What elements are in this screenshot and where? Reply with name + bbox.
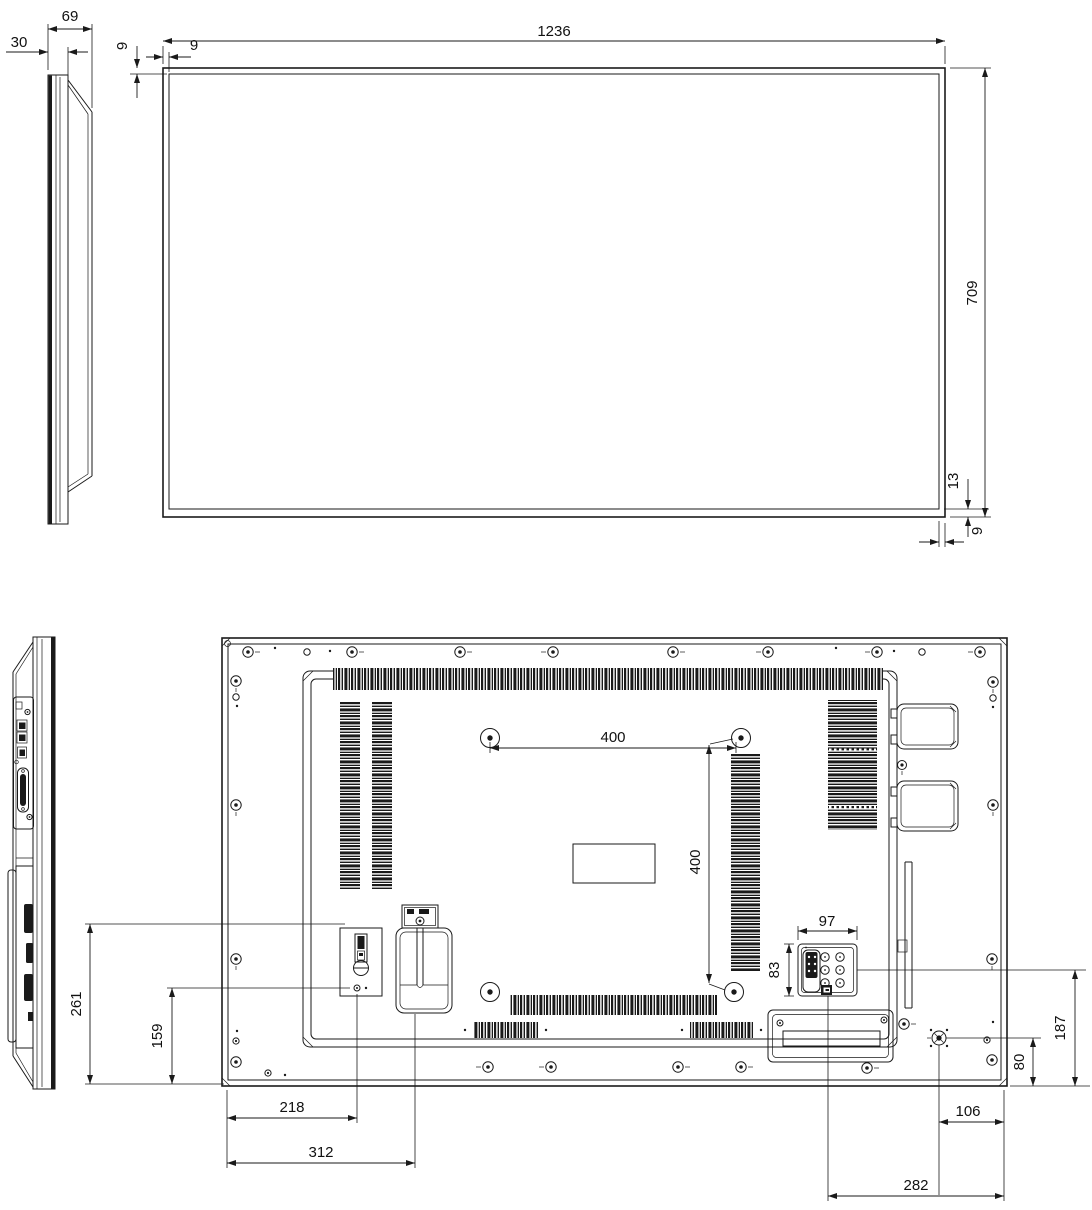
- dim-front-bezel-right: 9: [969, 527, 986, 535]
- front-view: [163, 68, 945, 517]
- dim-rear-switch-screw-height: 159: [149, 1023, 166, 1048]
- dim-keypad-width: 97: [819, 913, 836, 930]
- rating-label: [573, 844, 655, 883]
- dim-front-bezel-left: 9: [190, 37, 198, 54]
- technical-drawing-page: 69 30 1236 9 9 709 13 9: [0, 0, 1092, 1210]
- dim-front-bezel-bottom: 13: [945, 473, 962, 490]
- rear-view: [222, 638, 1007, 1086]
- connector-bay: [768, 1010, 893, 1062]
- right-channel: [898, 862, 912, 1008]
- dim-side-front-depth: 30: [11, 34, 28, 51]
- dim-side-bottom: 261 159: [68, 924, 350, 1084]
- power-switch-plate: [340, 928, 382, 996]
- dim-front-height: 709: [964, 280, 981, 305]
- side-view-bottom: [8, 637, 55, 1089]
- screw-between-handles: [898, 761, 907, 776]
- osd-keypad: [798, 944, 857, 996]
- dim-side-total-depth: 69: [62, 8, 79, 25]
- dim-ground-stud-offset-x: 106: [955, 1103, 980, 1120]
- dim-ground-stud-offset-y: 80: [1011, 1054, 1028, 1071]
- dimension-drawing: 69 30 1236 9 9 709 13 9: [0, 0, 1092, 1210]
- keypad-buttons: [821, 953, 844, 987]
- vesa-mount-holes: [481, 729, 751, 1002]
- ground-stud: [927, 1029, 948, 1047]
- cable-bracket: [396, 905, 452, 1013]
- dim-switch-offset-x: 218: [279, 1099, 304, 1116]
- dim-vesa-width: 400: [600, 729, 625, 746]
- dim-front-bezel-top: 9: [114, 42, 131, 50]
- handle-bottom: [891, 781, 958, 831]
- dim-connector-offset-x: 282: [903, 1177, 928, 1194]
- dim-keypad-height: 83: [766, 962, 783, 979]
- rear-inner-panel: [303, 671, 897, 1047]
- handle-top: [891, 704, 958, 749]
- side-view-top: [48, 75, 92, 524]
- dim-bracket-offset-x: 312: [308, 1144, 333, 1161]
- dim-rear-switch-top-height: 261: [68, 991, 85, 1016]
- dim-front-width: 1236: [537, 23, 570, 40]
- dim-keypad-offset-y: 187: [1052, 1015, 1069, 1040]
- dim-front-view: 1236 9 9 709 13 9: [114, 23, 991, 547]
- dim-vesa-height: 400: [687, 849, 704, 874]
- vent-grilles: [333, 668, 883, 1038]
